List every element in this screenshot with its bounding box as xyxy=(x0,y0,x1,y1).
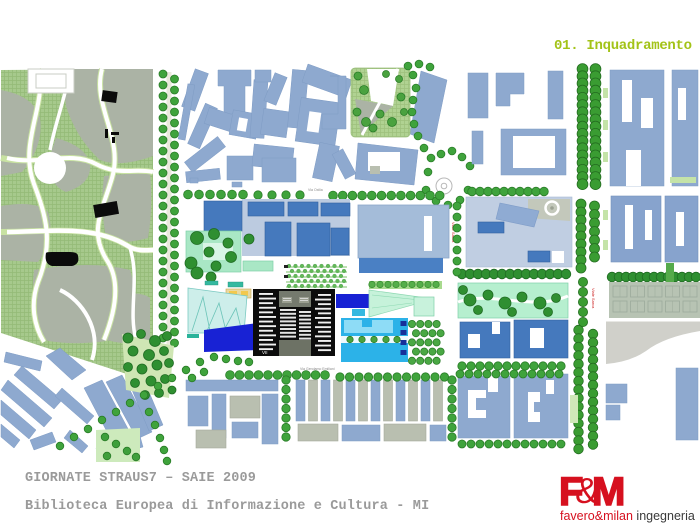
svg-text:GIORNATE STRAUS7 – SAIE 2009: GIORNATE STRAUS7 – SAIE 2009 xyxy=(25,471,256,486)
svg-text:Via Gerolamo Emiliani: Via Gerolamo Emiliani xyxy=(300,367,335,371)
svg-text:VII: VII xyxy=(262,350,268,355)
svg-text:Biblioteca Europea di Informaz: Biblioteca Europea di Informazione e Cul… xyxy=(25,499,429,514)
svg-text:01. Inquadramento: 01. Inquadramento xyxy=(554,38,692,54)
svg-text:favero&milan ingegneria: favero&milan ingegneria xyxy=(560,509,695,523)
svg-text:M: M xyxy=(592,470,625,514)
svg-text:Viale Sarca: Viale Sarca xyxy=(591,288,596,309)
svg-text:Via Oxilia: Via Oxilia xyxy=(308,188,323,192)
